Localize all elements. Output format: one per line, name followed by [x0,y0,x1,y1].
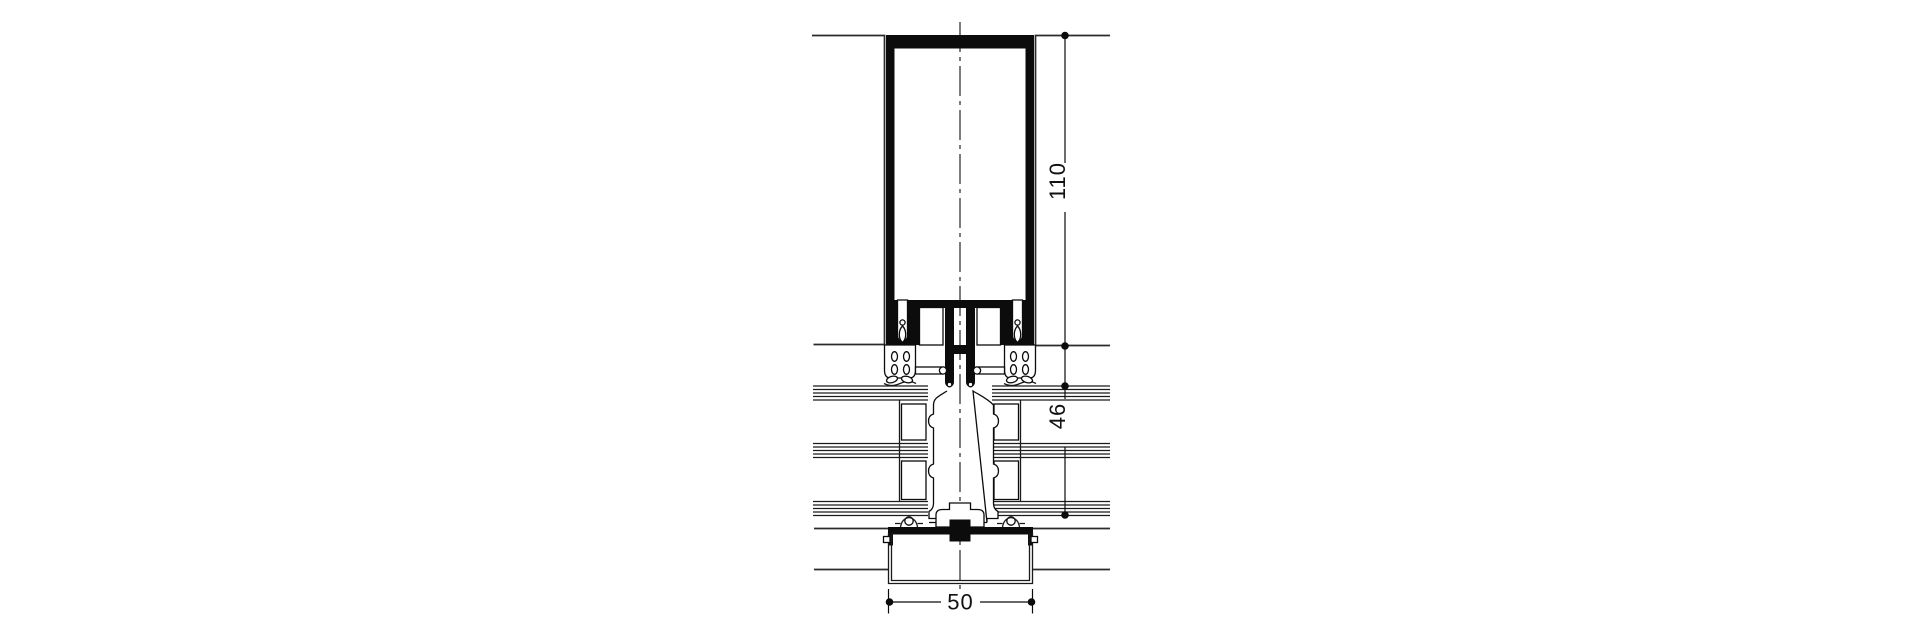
dimension-46-label: 46 [1045,403,1070,429]
technical-drawing: 110 46 50 [0,0,1920,640]
perforated-plate-left [884,345,916,386]
dimension-110-label: 110 [1045,162,1070,200]
pressure-plate [888,527,1033,535]
gasket-omega-left [895,517,923,527]
gasket-omega-right [997,517,1025,527]
adjacent-frame-left-outline [812,36,885,345]
connector-arm-left [916,367,947,374]
dimension-chain-right: 110 46 [1045,32,1070,519]
connector-arm-right [973,367,1004,374]
dimension-50: 50 [886,589,1036,615]
dimension-50-label: 50 [947,590,973,615]
drawing-canvas: 110 46 50 [0,0,1920,640]
perforated-plate-right [1004,345,1036,386]
gasket-teardrop-left [899,320,905,343]
gasket-teardrop-right [1014,320,1020,343]
pressure-plate-assembly [888,503,1033,546]
